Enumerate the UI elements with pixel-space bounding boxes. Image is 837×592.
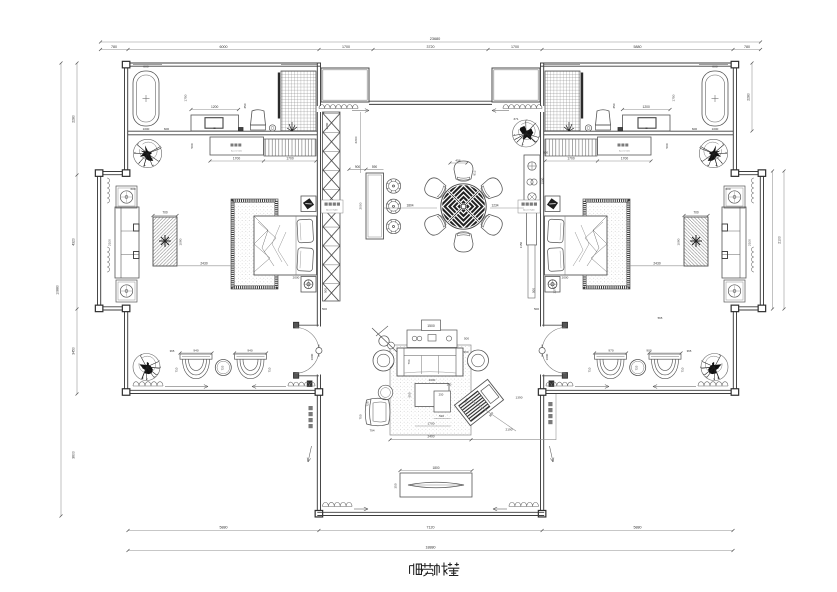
svg-text:900: 900: [355, 165, 361, 169]
svg-text:2000: 2000: [429, 378, 436, 382]
svg-text:1700: 1700: [621, 157, 629, 161]
svg-text:940: 940: [193, 349, 198, 353]
svg-text:1700: 1700: [342, 45, 350, 49]
svg-text:1800: 1800: [432, 466, 439, 470]
svg-text:Accent Table: Accent Table: [231, 150, 242, 153]
svg-text:2280: 2280: [325, 122, 329, 129]
svg-text:160: 160: [447, 383, 452, 387]
svg-text:1200: 1200: [211, 105, 219, 109]
svg-text:1000: 1000: [310, 353, 314, 360]
svg-text:5880: 5880: [634, 526, 642, 530]
svg-text:725: 725: [635, 365, 639, 370]
svg-text:500: 500: [464, 337, 469, 341]
svg-text:780: 780: [744, 45, 750, 49]
svg-text:700: 700: [162, 211, 168, 215]
svg-text:1000: 1000: [545, 353, 549, 360]
svg-text:6000: 6000: [220, 45, 228, 49]
svg-text:2000: 2000: [293, 276, 300, 280]
svg-text:764: 764: [407, 359, 411, 364]
svg-text:7120: 7120: [427, 526, 435, 530]
svg-text:Accent Table: Accent Table: [326, 209, 338, 212]
svg-text:780: 780: [111, 45, 117, 49]
svg-text:2280: 2280: [72, 115, 76, 123]
svg-text:500: 500: [532, 288, 536, 293]
svg-text:1000: 1000: [712, 127, 719, 131]
svg-text:700: 700: [693, 211, 699, 215]
svg-text:725: 725: [221, 365, 225, 370]
svg-text:500: 500: [665, 143, 669, 148]
svg-text:371: 371: [513, 117, 518, 121]
svg-text:10880: 10880: [56, 285, 60, 295]
svg-text:600: 600: [164, 127, 169, 131]
svg-text:250: 250: [439, 393, 444, 397]
svg-text:5880: 5880: [220, 526, 228, 530]
svg-text:2100: 2100: [778, 236, 782, 244]
svg-text:500: 500: [190, 143, 194, 148]
svg-text:350: 350: [394, 483, 398, 488]
svg-text:500: 500: [543, 151, 548, 155]
svg-text:2100: 2100: [748, 239, 752, 246]
svg-text:500: 500: [534, 307, 539, 311]
svg-text:2430: 2430: [653, 261, 661, 265]
svg-text:1700: 1700: [233, 157, 241, 161]
svg-text:1000: 1000: [143, 127, 150, 131]
svg-text:1200: 1200: [643, 105, 651, 109]
svg-text:2000: 2000: [562, 276, 569, 280]
svg-text:350: 350: [243, 103, 247, 108]
svg-text:1750: 1750: [672, 94, 676, 101]
svg-text:1080: 1080: [677, 238, 681, 245]
svg-text:1150: 1150: [519, 241, 523, 248]
svg-text:360: 360: [463, 350, 468, 354]
svg-text:1080: 1080: [179, 238, 183, 245]
svg-text:565: 565: [658, 316, 663, 320]
svg-text:800: 800: [143, 65, 148, 69]
svg-text:2000: 2000: [359, 202, 363, 209]
svg-text:1700: 1700: [567, 157, 575, 161]
svg-text:2430: 2430: [200, 261, 208, 265]
svg-text:1390: 1390: [516, 396, 523, 400]
svg-text:3600: 3600: [72, 451, 76, 459]
svg-text:2279: 2279: [553, 286, 557, 293]
svg-text:500: 500: [322, 307, 327, 311]
svg-text:970: 970: [608, 349, 613, 353]
svg-text:710: 710: [681, 367, 685, 372]
svg-text:900: 900: [646, 349, 651, 353]
svg-text:5880: 5880: [634, 45, 642, 49]
svg-text:725: 725: [366, 401, 370, 406]
svg-text:1804: 1804: [406, 204, 413, 208]
svg-text:18880: 18880: [426, 546, 436, 550]
svg-text:710: 710: [588, 367, 592, 372]
svg-text:2280: 2280: [747, 93, 751, 101]
svg-text:650: 650: [408, 392, 412, 397]
svg-text:750: 750: [359, 414, 363, 419]
svg-text:3450: 3450: [72, 347, 76, 355]
svg-text:1500: 1500: [541, 177, 545, 184]
svg-text:2100: 2100: [108, 239, 112, 246]
svg-text:Accent Table: Accent Table: [619, 150, 630, 153]
svg-text:500: 500: [324, 288, 328, 293]
svg-text:600: 600: [725, 187, 730, 191]
svg-text:1234: 1234: [491, 204, 498, 208]
svg-text:2400: 2400: [427, 435, 434, 439]
svg-text:2190: 2190: [506, 428, 513, 432]
svg-text:710: 710: [175, 367, 179, 372]
svg-text:1750: 1750: [184, 94, 188, 101]
svg-text:520: 520: [439, 414, 444, 418]
svg-text:812: 812: [473, 170, 477, 175]
svg-text:1700: 1700: [428, 422, 435, 426]
svg-text:1700: 1700: [511, 45, 519, 49]
svg-text:1700: 1700: [286, 157, 294, 161]
svg-text:365: 365: [687, 349, 692, 353]
svg-text:4320: 4320: [72, 238, 76, 246]
svg-text:600: 600: [692, 127, 697, 131]
svg-text:590: 590: [372, 165, 378, 169]
svg-text:2200: 2200: [354, 136, 358, 143]
svg-text:23680: 23680: [430, 37, 441, 41]
svg-text:600: 600: [130, 187, 135, 191]
svg-text:940: 940: [247, 349, 252, 353]
svg-text:350: 350: [612, 103, 616, 108]
svg-text:1500: 1500: [427, 324, 435, 328]
svg-text:800: 800: [712, 65, 717, 69]
svg-text:365: 365: [170, 349, 175, 353]
svg-text:3720: 3720: [427, 45, 435, 49]
svg-text:Accent Table: Accent Table: [523, 209, 535, 212]
svg-text:794: 794: [369, 429, 374, 433]
svg-text:456: 456: [455, 159, 460, 163]
svg-text:710: 710: [268, 367, 272, 372]
